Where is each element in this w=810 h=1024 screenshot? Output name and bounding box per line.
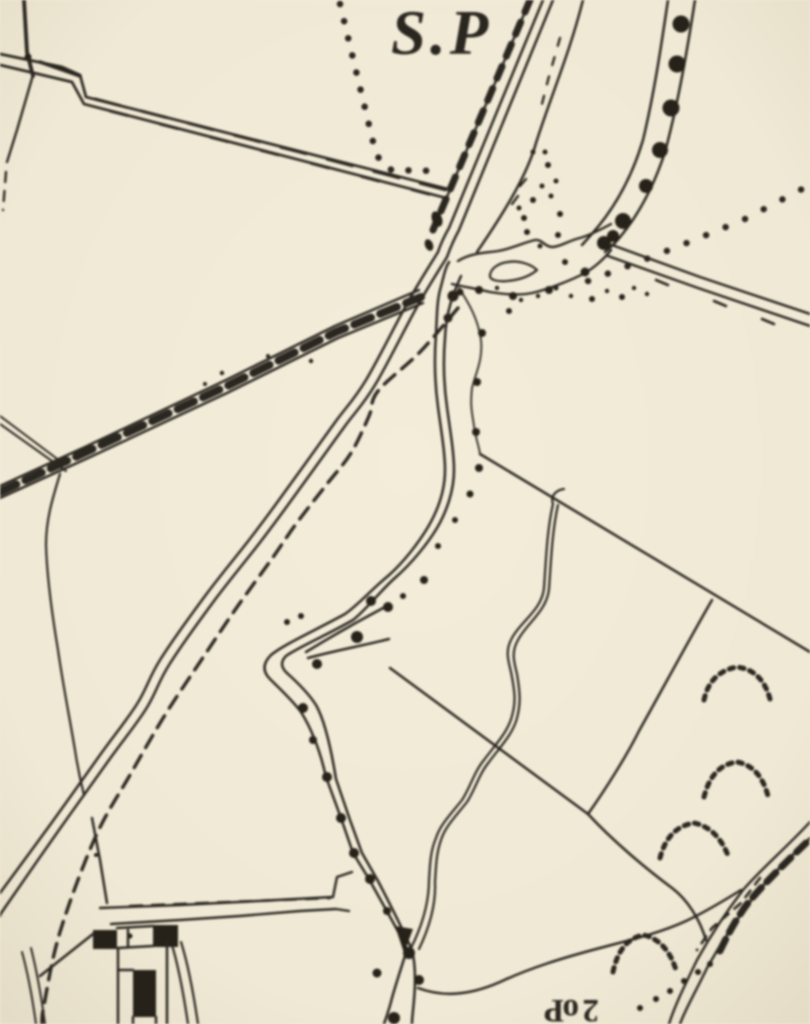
svg-text:2: 2: [583, 992, 600, 1024]
svg-text:P: P: [544, 992, 564, 1024]
svg-text:S.P: S.P: [391, 0, 492, 68]
svg-text:o: o: [563, 992, 580, 1024]
